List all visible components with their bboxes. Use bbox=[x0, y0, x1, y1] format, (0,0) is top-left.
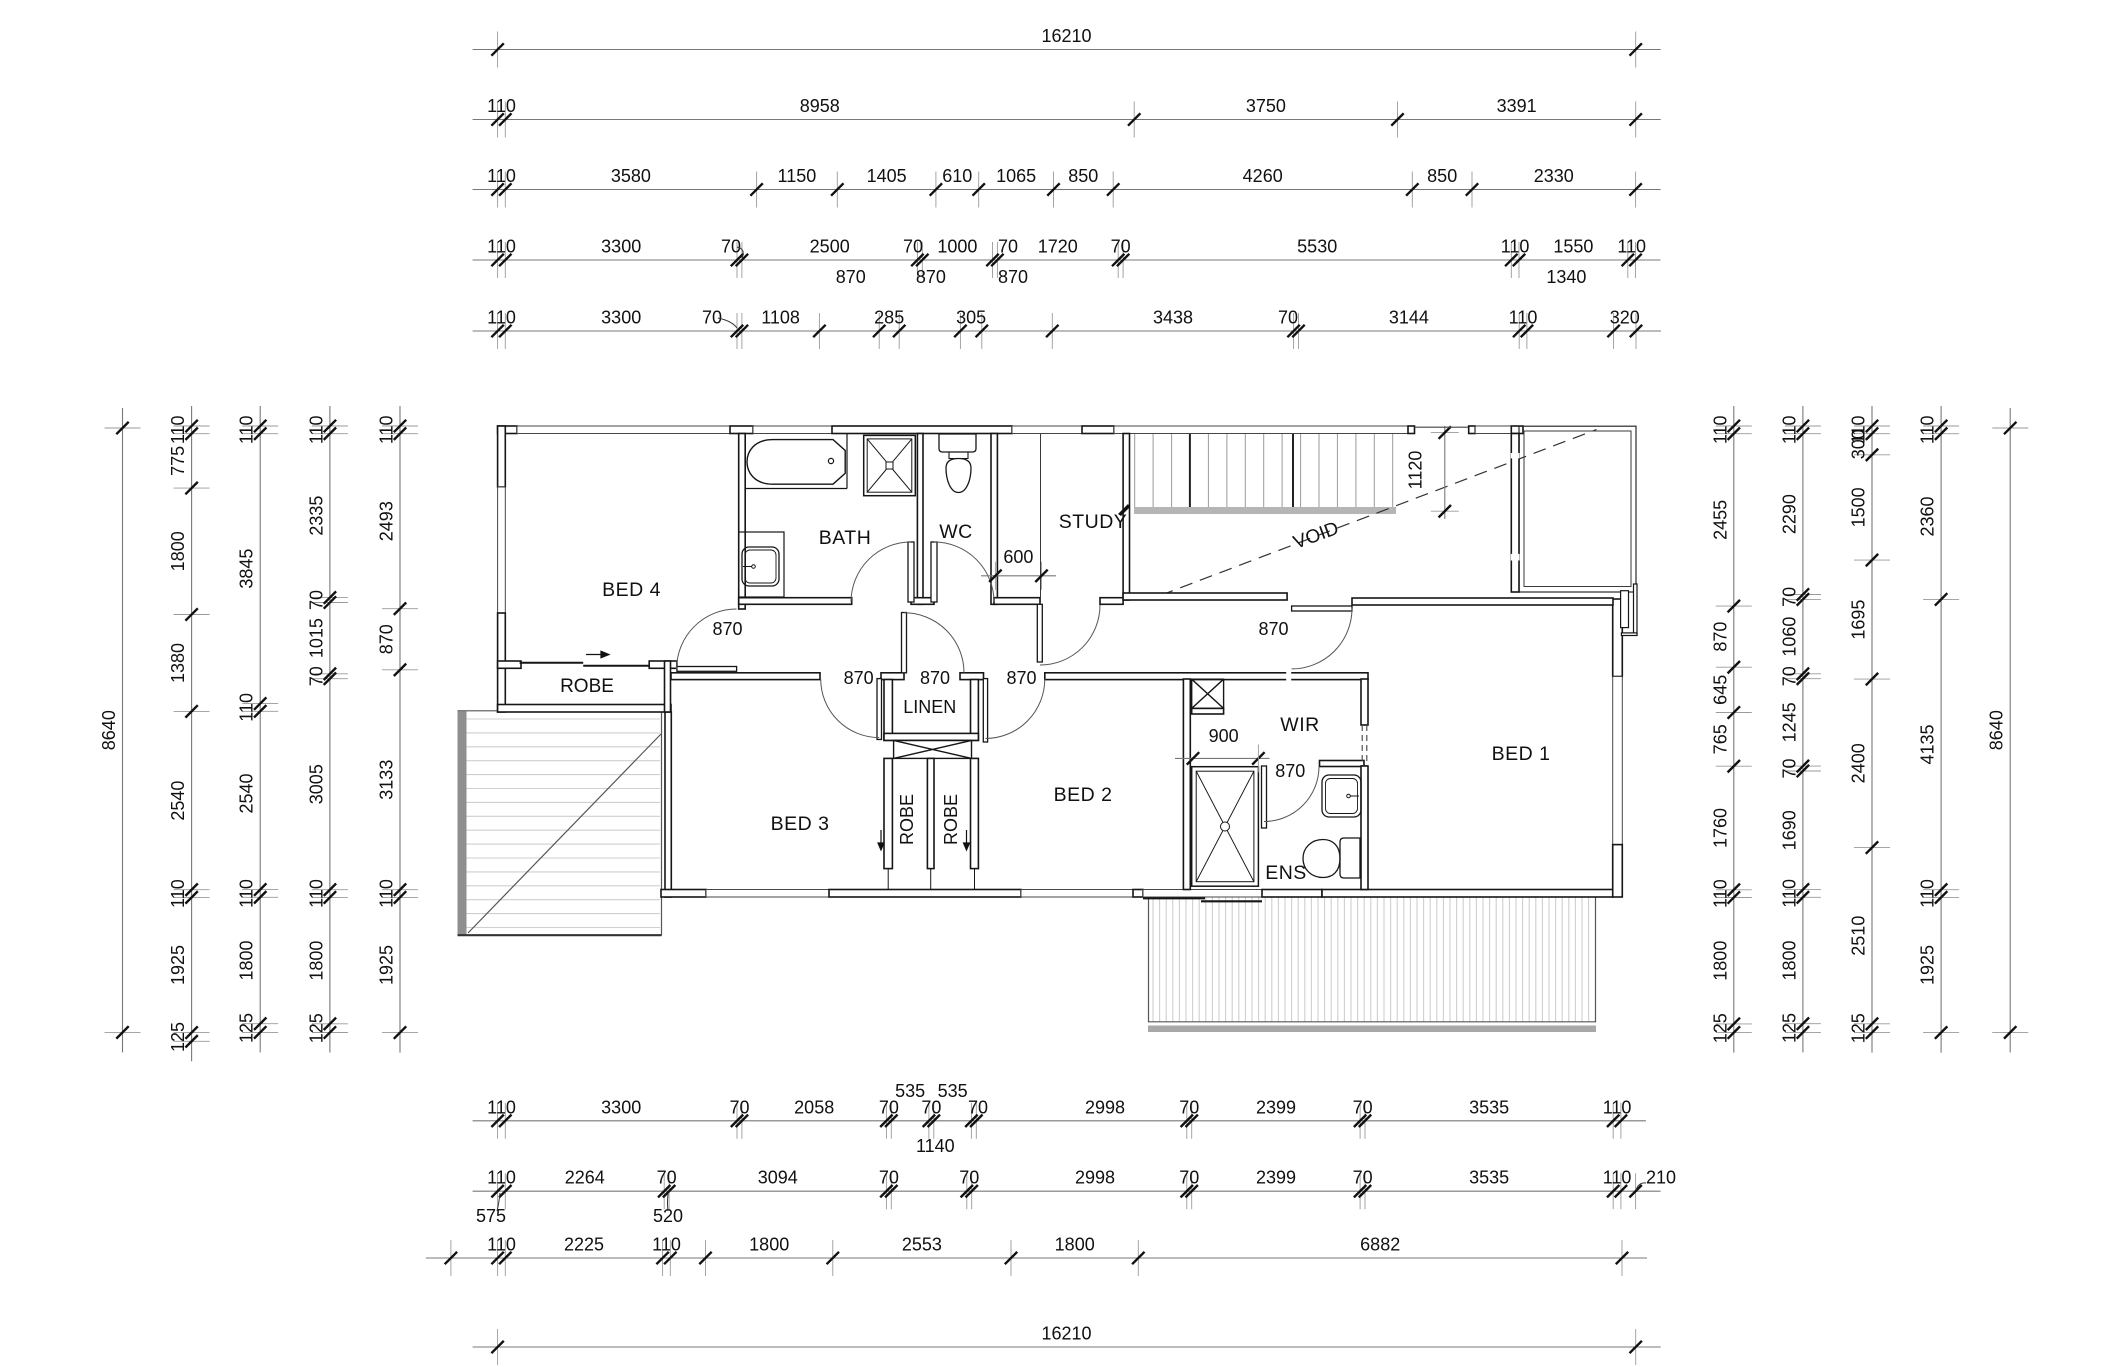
svg-text:3580: 3580 bbox=[611, 166, 651, 186]
svg-text:3144: 3144 bbox=[1389, 308, 1429, 328]
svg-text:2540: 2540 bbox=[168, 781, 188, 821]
svg-text:110: 110 bbox=[1509, 308, 1538, 328]
svg-text:125: 125 bbox=[168, 1022, 188, 1052]
svg-text:110: 110 bbox=[306, 879, 326, 908]
svg-text:110: 110 bbox=[487, 237, 516, 257]
svg-text:870: 870 bbox=[1258, 619, 1288, 639]
svg-text:2335: 2335 bbox=[306, 496, 326, 536]
svg-text:110: 110 bbox=[377, 879, 397, 908]
svg-text:1140: 1140 bbox=[916, 1136, 955, 1156]
svg-text:110: 110 bbox=[168, 879, 188, 908]
svg-text:125: 125 bbox=[306, 1013, 326, 1043]
svg-text:110: 110 bbox=[487, 1097, 516, 1117]
svg-text:1690: 1690 bbox=[1779, 810, 1799, 850]
svg-text:3438: 3438 bbox=[1153, 308, 1193, 328]
svg-text:1340: 1340 bbox=[1546, 267, 1586, 287]
svg-text:70: 70 bbox=[721, 237, 741, 257]
svg-text:6882: 6882 bbox=[1360, 1235, 1400, 1255]
svg-text:125: 125 bbox=[1710, 1013, 1730, 1043]
svg-text:110: 110 bbox=[377, 415, 397, 444]
svg-text:1380: 1380 bbox=[168, 643, 188, 683]
svg-text:1800: 1800 bbox=[306, 941, 326, 981]
svg-text:3391: 3391 bbox=[1497, 96, 1537, 116]
svg-text:1720: 1720 bbox=[1038, 237, 1078, 257]
svg-text:610: 610 bbox=[942, 166, 972, 186]
svg-text:110: 110 bbox=[1617, 237, 1646, 257]
svg-text:1800: 1800 bbox=[749, 1235, 789, 1255]
svg-text:870: 870 bbox=[836, 267, 866, 287]
svg-text:850: 850 bbox=[1068, 166, 1098, 186]
svg-text:870: 870 bbox=[920, 668, 950, 688]
svg-text:300: 300 bbox=[1849, 429, 1869, 459]
svg-text:110: 110 bbox=[237, 693, 257, 722]
svg-text:110: 110 bbox=[487, 308, 516, 328]
svg-text:3300: 3300 bbox=[601, 237, 641, 257]
svg-text:70: 70 bbox=[1779, 587, 1799, 607]
svg-text:16210: 16210 bbox=[1041, 26, 1091, 46]
svg-text:1245: 1245 bbox=[1779, 702, 1799, 742]
svg-text:110: 110 bbox=[487, 1235, 516, 1255]
svg-text:210: 210 bbox=[1646, 1168, 1676, 1188]
svg-text:2540: 2540 bbox=[237, 773, 257, 813]
svg-text:1108: 1108 bbox=[761, 308, 800, 328]
svg-text:2493: 2493 bbox=[377, 501, 397, 541]
svg-text:2399: 2399 bbox=[1256, 1097, 1296, 1117]
svg-text:870: 870 bbox=[377, 624, 397, 654]
svg-text:1065: 1065 bbox=[996, 166, 1036, 186]
svg-text:1150: 1150 bbox=[778, 166, 817, 186]
svg-text:600: 600 bbox=[1003, 547, 1033, 567]
svg-text:2998: 2998 bbox=[1085, 1097, 1125, 1117]
svg-text:870: 870 bbox=[1275, 761, 1305, 781]
svg-text:2225: 2225 bbox=[564, 1235, 604, 1255]
svg-text:3300: 3300 bbox=[601, 1097, 641, 1117]
svg-text:2998: 2998 bbox=[1075, 1168, 1115, 1188]
svg-text:1800: 1800 bbox=[237, 940, 257, 980]
svg-text:2330: 2330 bbox=[1534, 166, 1574, 186]
svg-text:775: 775 bbox=[168, 446, 188, 476]
svg-text:8640: 8640 bbox=[99, 710, 119, 750]
svg-text:110: 110 bbox=[1710, 879, 1730, 908]
svg-text:1550: 1550 bbox=[1553, 237, 1593, 257]
svg-text:70: 70 bbox=[1353, 1097, 1373, 1117]
svg-text:8640: 8640 bbox=[1987, 710, 2007, 750]
svg-text:1925: 1925 bbox=[1918, 945, 1938, 985]
svg-text:1405: 1405 bbox=[867, 166, 907, 186]
svg-text:850: 850 bbox=[1427, 166, 1457, 186]
svg-text:3005: 3005 bbox=[306, 764, 326, 804]
svg-text:70: 70 bbox=[968, 1097, 988, 1117]
svg-text:110: 110 bbox=[168, 415, 188, 444]
svg-text:110: 110 bbox=[1779, 415, 1799, 444]
svg-text:ROBE: ROBE bbox=[560, 676, 614, 697]
svg-text:2058: 2058 bbox=[794, 1097, 834, 1117]
svg-text:125: 125 bbox=[237, 1013, 257, 1043]
svg-text:110: 110 bbox=[1501, 237, 1530, 257]
svg-text:70: 70 bbox=[1779, 666, 1799, 686]
svg-text:3845: 3845 bbox=[237, 549, 257, 589]
svg-text:1800: 1800 bbox=[1779, 940, 1799, 980]
svg-text:110: 110 bbox=[237, 415, 257, 444]
svg-text:285: 285 bbox=[874, 308, 904, 328]
svg-text:BED 3: BED 3 bbox=[771, 813, 830, 835]
svg-text:1925: 1925 bbox=[377, 945, 397, 985]
svg-text:765: 765 bbox=[1710, 724, 1730, 754]
svg-text:2399: 2399 bbox=[1256, 1168, 1296, 1188]
svg-text:2400: 2400 bbox=[1849, 743, 1869, 783]
svg-text:LINEN: LINEN bbox=[903, 697, 956, 717]
svg-text:1800: 1800 bbox=[1055, 1235, 1095, 1255]
svg-text:70: 70 bbox=[1278, 308, 1298, 328]
svg-text:ROBE: ROBE bbox=[941, 794, 961, 845]
svg-text:1015: 1015 bbox=[306, 618, 326, 658]
svg-text:2510: 2510 bbox=[1849, 916, 1869, 956]
svg-text:70: 70 bbox=[959, 1168, 979, 1188]
svg-text:70: 70 bbox=[702, 308, 722, 328]
svg-text:1120: 1120 bbox=[1406, 451, 1426, 490]
svg-text:70: 70 bbox=[1111, 237, 1131, 257]
svg-text:BED 4: BED 4 bbox=[602, 579, 661, 601]
svg-text:110: 110 bbox=[487, 1168, 516, 1188]
svg-text:125: 125 bbox=[1849, 1013, 1869, 1043]
svg-text:STUDY: STUDY bbox=[1059, 511, 1128, 533]
svg-text:110: 110 bbox=[652, 1235, 681, 1255]
svg-text:70: 70 bbox=[998, 237, 1018, 257]
svg-text:70: 70 bbox=[306, 590, 326, 610]
svg-text:645: 645 bbox=[1710, 675, 1730, 705]
svg-text:110: 110 bbox=[487, 96, 516, 116]
svg-text:5530: 5530 bbox=[1297, 237, 1337, 257]
svg-text:900: 900 bbox=[1209, 726, 1239, 746]
svg-text:2500: 2500 bbox=[810, 237, 850, 257]
svg-text:70: 70 bbox=[729, 1097, 749, 1117]
svg-text:110: 110 bbox=[1603, 1168, 1632, 1188]
svg-text:70: 70 bbox=[903, 237, 923, 257]
svg-text:535: 535 bbox=[895, 1081, 925, 1101]
svg-text:70: 70 bbox=[306, 666, 326, 686]
svg-text:70: 70 bbox=[1179, 1097, 1199, 1117]
svg-text:70: 70 bbox=[1353, 1168, 1373, 1188]
svg-text:1060: 1060 bbox=[1779, 617, 1799, 657]
svg-text:1760: 1760 bbox=[1710, 808, 1730, 848]
svg-text:110: 110 bbox=[1918, 415, 1938, 444]
svg-text:535: 535 bbox=[938, 1081, 968, 1101]
svg-text:870: 870 bbox=[1006, 668, 1036, 688]
svg-text:3535: 3535 bbox=[1469, 1097, 1509, 1117]
svg-text:1000: 1000 bbox=[937, 237, 977, 257]
svg-text:2264: 2264 bbox=[565, 1168, 605, 1188]
svg-text:8958: 8958 bbox=[800, 96, 840, 116]
svg-text:16210: 16210 bbox=[1041, 1324, 1091, 1344]
svg-text:110: 110 bbox=[1779, 879, 1799, 908]
svg-text:3133: 3133 bbox=[377, 760, 397, 800]
svg-text:70: 70 bbox=[1179, 1168, 1199, 1188]
svg-text:1500: 1500 bbox=[1849, 487, 1869, 527]
svg-text:305: 305 bbox=[956, 308, 986, 328]
svg-text:4135: 4135 bbox=[1918, 724, 1938, 764]
svg-text:3300: 3300 bbox=[601, 308, 641, 328]
svg-text:2290: 2290 bbox=[1779, 494, 1799, 534]
svg-text:2455: 2455 bbox=[1710, 500, 1730, 540]
svg-text:125: 125 bbox=[1779, 1013, 1799, 1043]
svg-text:3535: 3535 bbox=[1469, 1168, 1509, 1188]
svg-text:1800: 1800 bbox=[1710, 941, 1730, 981]
svg-text:870: 870 bbox=[844, 668, 874, 688]
svg-text:870: 870 bbox=[916, 267, 946, 287]
svg-text:70: 70 bbox=[879, 1168, 899, 1188]
svg-text:70: 70 bbox=[657, 1168, 677, 1188]
svg-text:1695: 1695 bbox=[1849, 600, 1869, 640]
svg-text:110: 110 bbox=[1918, 879, 1938, 908]
svg-text:870: 870 bbox=[712, 619, 742, 639]
svg-text:BED 1: BED 1 bbox=[1492, 743, 1551, 765]
svg-text:3750: 3750 bbox=[1246, 96, 1286, 116]
svg-text:110: 110 bbox=[1603, 1097, 1632, 1117]
svg-text:2553: 2553 bbox=[902, 1235, 942, 1255]
svg-text:1925: 1925 bbox=[168, 945, 188, 985]
svg-text:WC: WC bbox=[939, 521, 973, 543]
svg-text:70: 70 bbox=[1779, 758, 1799, 778]
svg-text:1800: 1800 bbox=[168, 531, 188, 571]
svg-text:3094: 3094 bbox=[758, 1168, 798, 1188]
svg-text:ROBE: ROBE bbox=[897, 794, 917, 845]
svg-text:110: 110 bbox=[237, 879, 257, 908]
svg-text:ENS: ENS bbox=[1265, 862, 1307, 884]
svg-text:BED 2: BED 2 bbox=[1054, 784, 1113, 806]
svg-text:110: 110 bbox=[306, 415, 326, 444]
svg-text:WIR: WIR bbox=[1280, 714, 1319, 736]
svg-text:870: 870 bbox=[998, 267, 1028, 287]
svg-text:110: 110 bbox=[487, 166, 516, 186]
svg-text:110: 110 bbox=[1710, 415, 1730, 444]
svg-text:870: 870 bbox=[1710, 622, 1730, 652]
svg-text:4260: 4260 bbox=[1243, 166, 1283, 186]
svg-text:2360: 2360 bbox=[1918, 496, 1938, 536]
svg-text:575: 575 bbox=[476, 1206, 506, 1226]
svg-text:BATH: BATH bbox=[819, 527, 872, 549]
svg-text:320: 320 bbox=[1610, 308, 1640, 328]
